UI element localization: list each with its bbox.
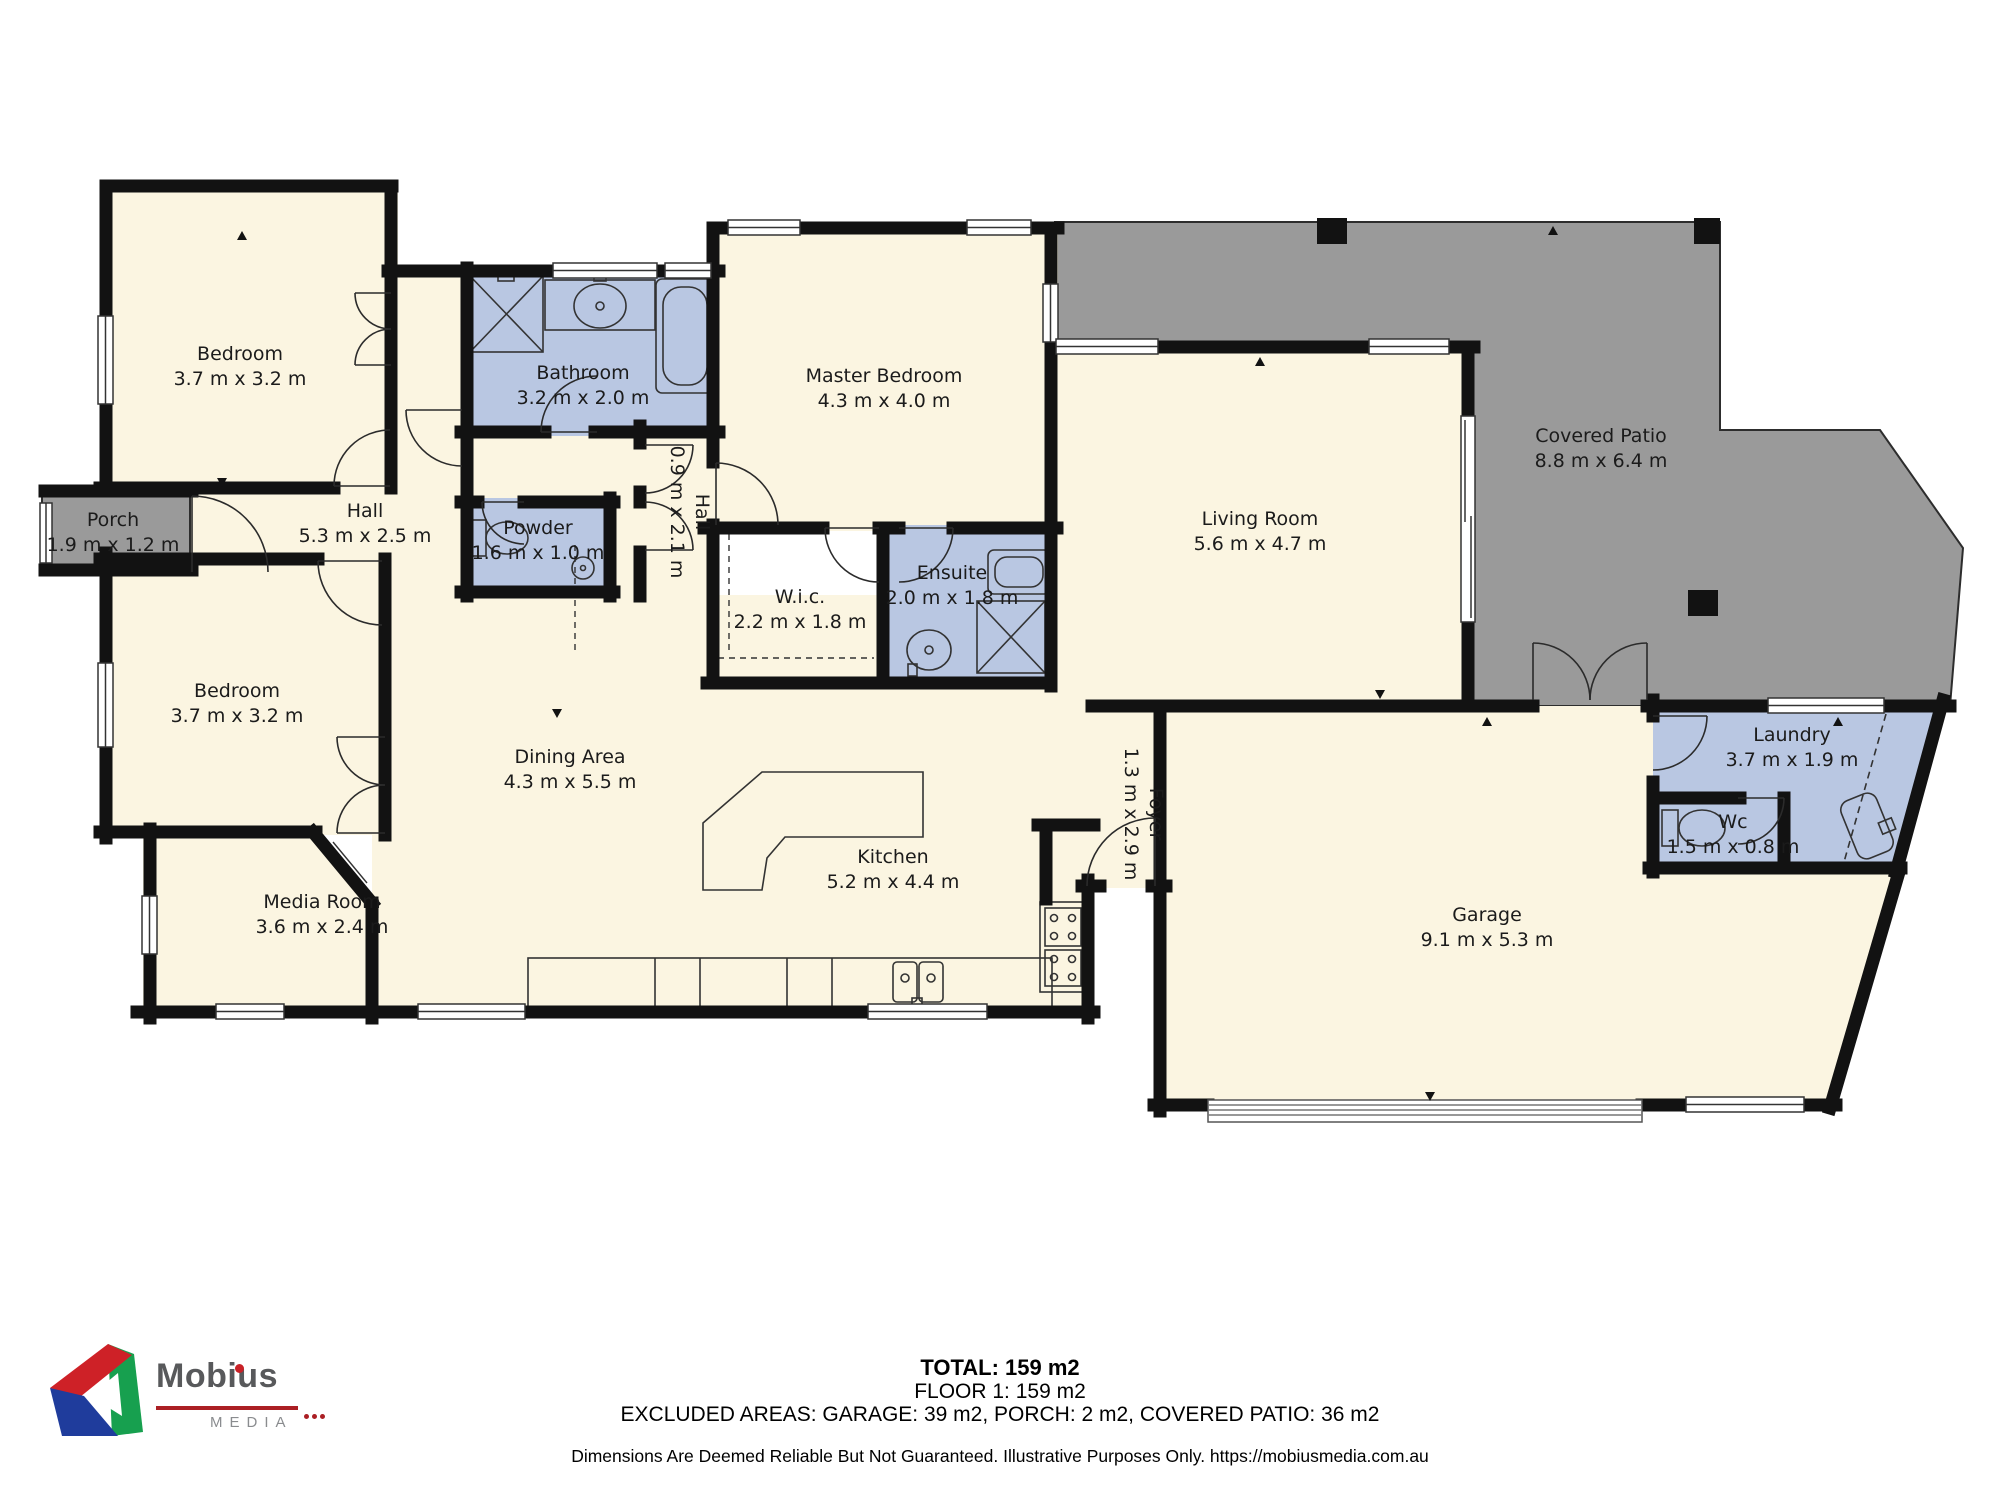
room-label-bedroom-2: Bedroom3.7 m x 3.2 m bbox=[87, 679, 387, 729]
room-label-laundry: Laundry3.7 m x 1.9 m bbox=[1642, 723, 1942, 773]
pillar bbox=[1688, 590, 1718, 616]
logo-brand-text: Mobius bbox=[156, 1358, 278, 1394]
room-label-covered-patio: Covered Patio8.8 m x 6.4 m bbox=[1451, 424, 1751, 474]
garage-door bbox=[1208, 1100, 1642, 1122]
window bbox=[728, 220, 800, 235]
window bbox=[1056, 339, 1158, 354]
room-label-powder: Powder1.6 m x 1.0 m bbox=[388, 516, 688, 566]
logo-sub-text: MEDIA bbox=[210, 1414, 293, 1432]
window bbox=[1686, 1097, 1804, 1112]
ensuite-shower-icon bbox=[977, 601, 1045, 673]
room-label-kitchen: Kitchen5.2 m x 4.4 m bbox=[743, 845, 1043, 895]
room-label-ensuite: Ensuite2.0 m x 1.8 m bbox=[802, 561, 1102, 611]
window bbox=[1768, 698, 1884, 713]
room-label-living-room: Living Room5.6 m x 4.7 m bbox=[1110, 507, 1410, 557]
window bbox=[665, 263, 711, 278]
logo-triangle-icon bbox=[48, 1340, 148, 1442]
logo-ellipsis bbox=[304, 1404, 328, 1423]
window bbox=[418, 1004, 525, 1019]
mobius-media-logo: Mobius MEDIA bbox=[48, 1340, 368, 1460]
room-label-dining-area: Dining Area4.3 m x 5.5 m bbox=[420, 745, 720, 795]
window bbox=[1043, 284, 1058, 342]
window bbox=[216, 1004, 284, 1019]
pillar bbox=[1317, 218, 1347, 244]
logo-i-dot bbox=[235, 1364, 244, 1373]
pillar bbox=[1694, 218, 1720, 244]
room-label-bedroom-1: Bedroom3.7 m x 3.2 m bbox=[90, 342, 390, 392]
room-label-wc: Wc1.5 m x 0.8 m bbox=[1583, 810, 1883, 860]
room-label-media-room: Media Room3.6 m x 2.4 m bbox=[172, 890, 472, 940]
window bbox=[553, 263, 657, 278]
room-label-garage: Garage9.1 m x 5.3 m bbox=[1337, 903, 1637, 953]
logo-underline bbox=[156, 1406, 298, 1410]
room-label-foyer: Foyer1.3 m x 2.9 m bbox=[1118, 664, 1168, 964]
window bbox=[1369, 339, 1449, 354]
floorplan-page: Bedroom3.7 m x 3.2 m Bathroom3.2 m x 2.0… bbox=[0, 0, 2000, 1500]
window bbox=[142, 896, 157, 954]
window bbox=[967, 220, 1031, 235]
room-label-master-bedroom: Master Bedroom4.3 m x 4.0 m bbox=[734, 364, 1034, 414]
shower-icon bbox=[470, 272, 543, 352]
window bbox=[868, 1004, 987, 1019]
